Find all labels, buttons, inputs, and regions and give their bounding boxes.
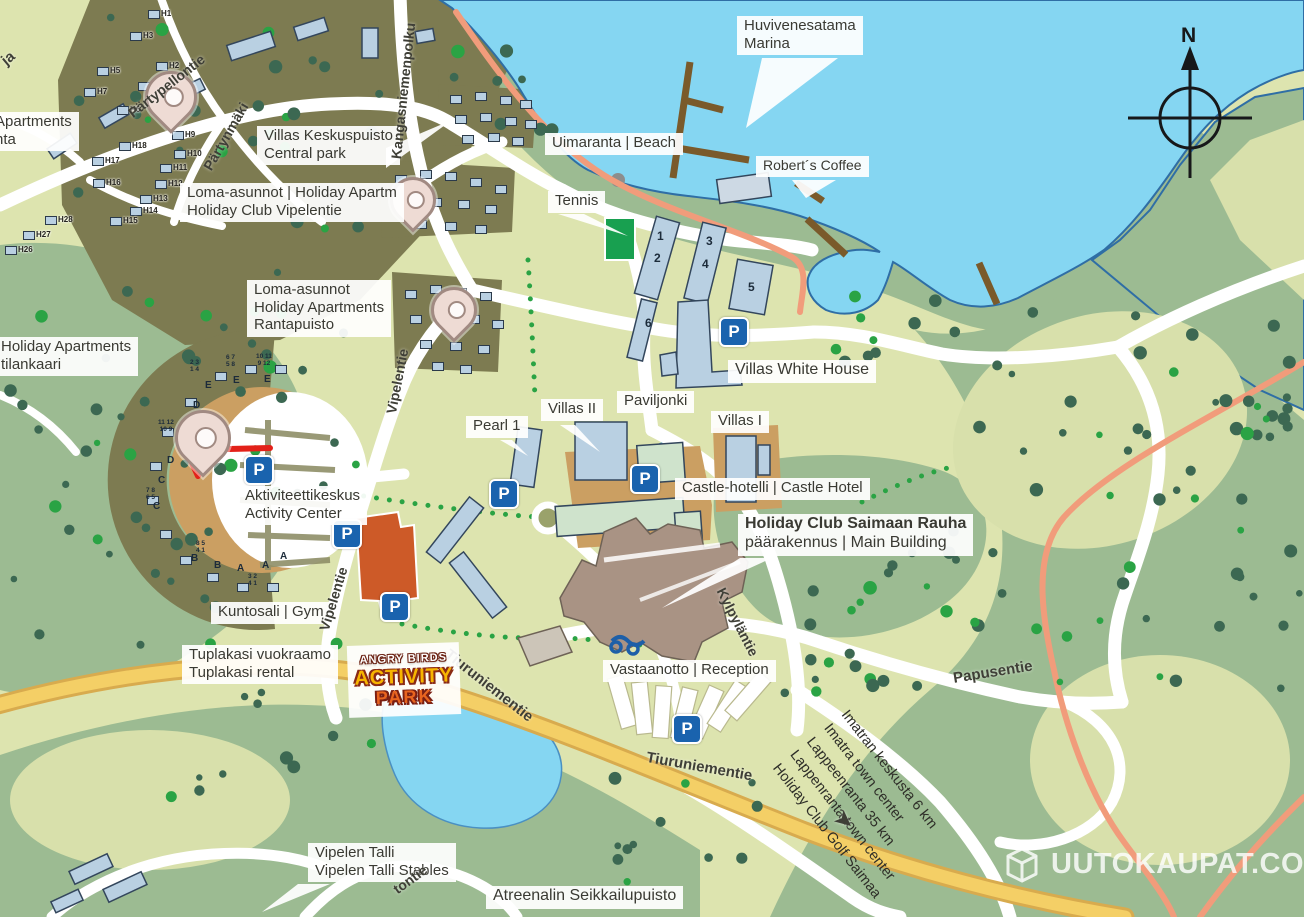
cluster-mark: A (280, 552, 287, 563)
parking-icon: P (719, 317, 749, 347)
label-villas-white-house: Villas White House (728, 360, 876, 383)
house-marker (458, 200, 470, 209)
cluster-mark: 10 11 9 12 (256, 354, 272, 368)
house-marker (495, 185, 507, 194)
cluster-mark: 8 5 4 1 (196, 541, 205, 555)
house-icon (500, 96, 512, 105)
house-marker: H11 (160, 164, 187, 173)
label-atreenalin: Atreenalin Seikkailupuisto (486, 886, 683, 909)
house-icon (478, 345, 490, 354)
label-holiday-apartments-tilankaari-line: tilankaari (1, 356, 131, 374)
house-label: H17 (105, 156, 120, 165)
house-icon (492, 320, 504, 329)
cluster-mark: 3 2 4 1 (248, 574, 257, 588)
cluster-mark: A (237, 564, 244, 575)
label-villas-ii: Villas II (541, 399, 603, 421)
house-marker (485, 205, 497, 214)
house-marker (480, 113, 492, 122)
house-label: H7 (97, 87, 107, 96)
label-vipelen-talli: Vipelen TalliVipelen Talli Stables (308, 843, 456, 882)
house-icon (525, 120, 537, 129)
house-icon (488, 133, 500, 142)
house-marker (207, 573, 219, 582)
house-marker (480, 292, 492, 301)
house-icon (495, 185, 507, 194)
cluster-mark: 5 (748, 281, 755, 294)
label-holiday-club-vipelentie-line: Loma-asunnot | Holiday Apartm (187, 184, 397, 202)
house-marker (525, 120, 537, 129)
house-icon (130, 32, 142, 41)
label-castle-hotel-line: Castle-hotelli | Castle Hotel (682, 479, 863, 497)
house-marker: H26 (5, 246, 33, 255)
cluster-mark: C (158, 476, 165, 487)
label-vipelen-talli-line: Vipelen Talli Stables (315, 862, 449, 880)
house-icon (267, 583, 279, 592)
house-icon (150, 462, 162, 471)
house-icon (23, 231, 35, 240)
house-marker (520, 100, 532, 109)
house-icon (160, 164, 172, 173)
parking-icon: P (672, 714, 702, 744)
house-marker (410, 315, 422, 324)
house-icon (275, 365, 287, 374)
house-marker (445, 222, 457, 231)
label-aktiviteettikeskus-line: Activity Center (245, 505, 360, 523)
house-icon (156, 62, 168, 71)
house-marker: H18 (119, 142, 147, 151)
label-villas-ii-line: Villas II (548, 400, 596, 418)
label-uimaranta-beach-line: Uimaranta | Beach (552, 134, 676, 152)
house-icon (148, 10, 160, 19)
house-icon (450, 95, 462, 104)
house-icon (505, 117, 517, 126)
angry-birds-logo-line3: PARK (375, 685, 433, 708)
label-holiday-apartments-tilankaari: Holiday Apartmentstilankaari (0, 337, 138, 376)
house-label: H18 (132, 141, 147, 150)
compass-north-label: N (1181, 24, 1196, 48)
house-icon (460, 365, 472, 374)
house-label: H10 (187, 149, 202, 158)
label-main-building-line: Holiday Club Saimaan Rauha (745, 515, 966, 534)
cluster-mark: 2 (654, 252, 661, 265)
label-tuplakasi-line: Tuplakasi rental (189, 664, 331, 682)
label-kuntosali-gym-line: Kuntosali | Gym (218, 603, 324, 621)
house-marker (420, 340, 432, 349)
house-marker (450, 342, 462, 351)
house-icon (475, 92, 487, 101)
house-icon (432, 362, 444, 371)
house-icon (174, 150, 186, 159)
cluster-mark: E (205, 381, 212, 392)
house-icon (410, 315, 422, 324)
house-marker: H27 (23, 231, 51, 240)
house-marker (460, 365, 472, 374)
label-apartments-edge-line: Apartments (0, 113, 72, 131)
label-villas-keskuspuisto: Villas KeskuspuistoCentral park (257, 126, 400, 165)
house-label: H9 (185, 130, 195, 139)
house-icon (462, 135, 474, 144)
cluster-mark: E (233, 376, 240, 387)
house-icon (130, 207, 142, 216)
cluster-mark: 11 12 10 9 (158, 420, 174, 434)
house-icon (475, 225, 487, 234)
cluster-mark: 7 8 6 5 (146, 488, 155, 502)
label-rantapuisto: Loma-asunnotHoliday ApartmentsRantapuist… (247, 280, 391, 337)
house-icon (155, 180, 167, 189)
house-marker (160, 530, 172, 539)
house-marker: H28 (45, 216, 73, 225)
label-villas-i: Villas I (711, 411, 769, 433)
house-label: H3 (143, 31, 153, 40)
label-castle-hotel: Castle-hotelli | Castle Hotel (675, 478, 870, 500)
house-icon (207, 573, 219, 582)
house-icon (445, 172, 457, 181)
house-marker (478, 345, 490, 354)
house-icon (485, 205, 497, 214)
label-vastaanotto-reception-line: Vastaanotto | Reception (610, 661, 769, 679)
house-marker (505, 117, 517, 126)
house-icon (470, 178, 482, 187)
label-paviljonki-line: Paviljonki (624, 392, 687, 410)
label-tennis: Tennis (548, 191, 605, 213)
cluster-mark: 6 7 5 8 (226, 355, 235, 369)
map-pin-hole (190, 422, 221, 453)
label-main-building-line: päärakennus | Main Building (745, 534, 966, 553)
label-villas-keskuspuisto-line: Central park (264, 145, 393, 163)
house-icon (215, 372, 227, 381)
label-rantapuisto-line: Loma-asunnot (254, 281, 384, 299)
label-uimaranta-beach: Uimaranta | Beach (545, 133, 683, 155)
label-villas-i-line: Villas I (718, 412, 762, 430)
house-marker (475, 225, 487, 234)
cluster-mark: E (264, 375, 271, 386)
label-roberts-coffee: Robert´s Coffee (756, 156, 869, 177)
cluster-mark: 6 (645, 317, 652, 330)
cluster-mark: 4 (702, 258, 709, 271)
label-huvivenesatama-marina-line: Huvivenesatama (744, 17, 856, 35)
house-marker (455, 115, 467, 124)
house-marker (500, 96, 512, 105)
house-icon (5, 246, 17, 255)
cluster-mark: 3 (706, 235, 713, 248)
parking-icon: P (380, 592, 410, 622)
house-marker (488, 133, 500, 142)
house-label: H27 (36, 230, 51, 239)
cluster-mark: D (167, 456, 174, 467)
label-villas-keskuspuisto-line: Villas Keskuspuisto (264, 127, 393, 145)
label-roberts-coffee-line: Robert´s Coffee (763, 157, 862, 174)
house-icon (480, 292, 492, 301)
label-atreenalin-line: Atreenalin Seikkailupuisto (493, 887, 676, 906)
house-marker (450, 95, 462, 104)
house-label: H5 (110, 66, 120, 75)
label-aktiviteettikeskus-line: Aktiviteettikeskus (245, 487, 360, 505)
angry-birds-activity-park-logo: ANGRY BIRDS ACTIVITY PARK (347, 642, 461, 718)
house-marker (512, 137, 524, 146)
resort-map: ANGRY BIRDS ACTIVITY PARK N UUTOKAUPAT.C… (0, 0, 1304, 917)
house-marker: H16 (93, 179, 121, 188)
label-kuntosali-gym: Kuntosali | Gym (211, 602, 331, 624)
house-marker: H1 (148, 10, 171, 19)
house-icon (172, 131, 184, 140)
house-icon (97, 67, 109, 76)
house-icon (405, 290, 417, 299)
house-marker (445, 172, 457, 181)
house-icon (512, 137, 524, 146)
house-marker: H15 (110, 217, 138, 226)
house-icon (119, 142, 131, 151)
house-marker (275, 365, 287, 374)
house-marker (432, 362, 444, 371)
label-rantapuisto-line: Holiday Apartments (254, 299, 384, 317)
house-marker (475, 92, 487, 101)
label-paviljonki: Paviljonki (617, 391, 694, 413)
house-icon (480, 113, 492, 122)
house-icon (140, 195, 152, 204)
house-icon (520, 100, 532, 109)
cluster-mark: 2 3 1 4 (190, 360, 199, 374)
house-label: H14 (143, 206, 158, 215)
house-marker: H7 (84, 88, 107, 97)
house-icon (45, 216, 57, 225)
house-label: H13 (153, 194, 168, 203)
house-icon (458, 200, 470, 209)
house-marker: H3 (130, 32, 153, 41)
house-label: H15 (123, 216, 138, 225)
label-aktiviteettikeskus: AktiviteettikeskusActivity Center (238, 486, 367, 525)
label-tuplakasi-line: Tuplakasi vuokraamo (189, 646, 331, 664)
label-huvivenesatama-marina: HuvivenesatamaMarina (737, 16, 863, 55)
house-icon (455, 115, 467, 124)
house-label: H16 (106, 178, 121, 187)
house-label: H28 (58, 215, 73, 224)
label-tennis-line: Tennis (555, 192, 598, 210)
label-apartments-edge-line: nta (0, 131, 72, 149)
house-marker (215, 372, 227, 381)
map-pin-hole (444, 297, 470, 323)
house-marker: H13 (140, 195, 168, 204)
house-marker: H9 (172, 131, 195, 140)
label-vastaanotto-reception: Vastaanotto | Reception (603, 660, 776, 682)
label-huvivenesatama-marina-line: Marina (744, 35, 856, 53)
cluster-mark: A (262, 561, 269, 572)
house-label: H1 (161, 9, 171, 18)
cluster-mark: B (191, 554, 198, 565)
house-marker (267, 583, 279, 592)
parking-icon: P (489, 479, 519, 509)
label-villas-white-house-line: Villas White House (735, 361, 869, 380)
cluster-mark: 1 (657, 230, 664, 243)
house-label: H26 (18, 245, 33, 254)
house-marker (462, 135, 474, 144)
label-rantapuisto-line: Rantapuisto (254, 316, 384, 334)
label-holiday-club-vipelentie-line: Holiday Club Vipelentie (187, 202, 397, 220)
house-icon (84, 88, 96, 97)
cluster-mark: C (153, 502, 160, 513)
house-marker (150, 462, 162, 471)
house-marker: H17 (92, 157, 120, 166)
house-icon (93, 179, 105, 188)
label-pearl-1: Pearl 1 (466, 416, 528, 438)
label-pearl-1-line: Pearl 1 (473, 417, 521, 435)
house-marker: H10 (174, 150, 202, 159)
house-icon (450, 342, 462, 351)
house-marker: H12 (155, 180, 183, 189)
watermark-text: UUTOKAUPAT.COM (1051, 848, 1304, 881)
label-vipelen-talli-line: Vipelen Talli (315, 844, 449, 862)
tennis-court (605, 218, 635, 260)
label-apartments-edge: Apartmentsnta (0, 112, 79, 151)
house-label: H11 (173, 163, 187, 172)
parking-icon: P (630, 464, 660, 494)
house-icon (420, 340, 432, 349)
house-marker (405, 290, 417, 299)
label-holiday-club-vipelentie: Loma-asunnot | Holiday ApartmHoliday Clu… (180, 183, 404, 222)
house-icon (445, 222, 457, 231)
house-icon (110, 217, 122, 226)
label-holiday-apartments-tilankaari-line: Holiday Apartments (1, 338, 131, 356)
house-marker (470, 178, 482, 187)
house-icon (160, 530, 172, 539)
cube-logo-icon (1000, 842, 1044, 886)
house-marker (492, 320, 504, 329)
label-tuplakasi: Tuplakasi vuokraamoTuplakasi rental (182, 645, 338, 684)
cluster-mark: B (214, 561, 221, 572)
watermark: UUTOKAUPAT.COM (1000, 842, 1304, 886)
house-marker: H5 (97, 67, 120, 76)
map-pin-hole (403, 187, 429, 213)
house-icon (92, 157, 104, 166)
label-main-building: Holiday Club Saimaan Rauhapäärakennus | … (738, 514, 973, 556)
house-marker: H14 (130, 207, 158, 216)
parking-icon: P (244, 455, 274, 485)
